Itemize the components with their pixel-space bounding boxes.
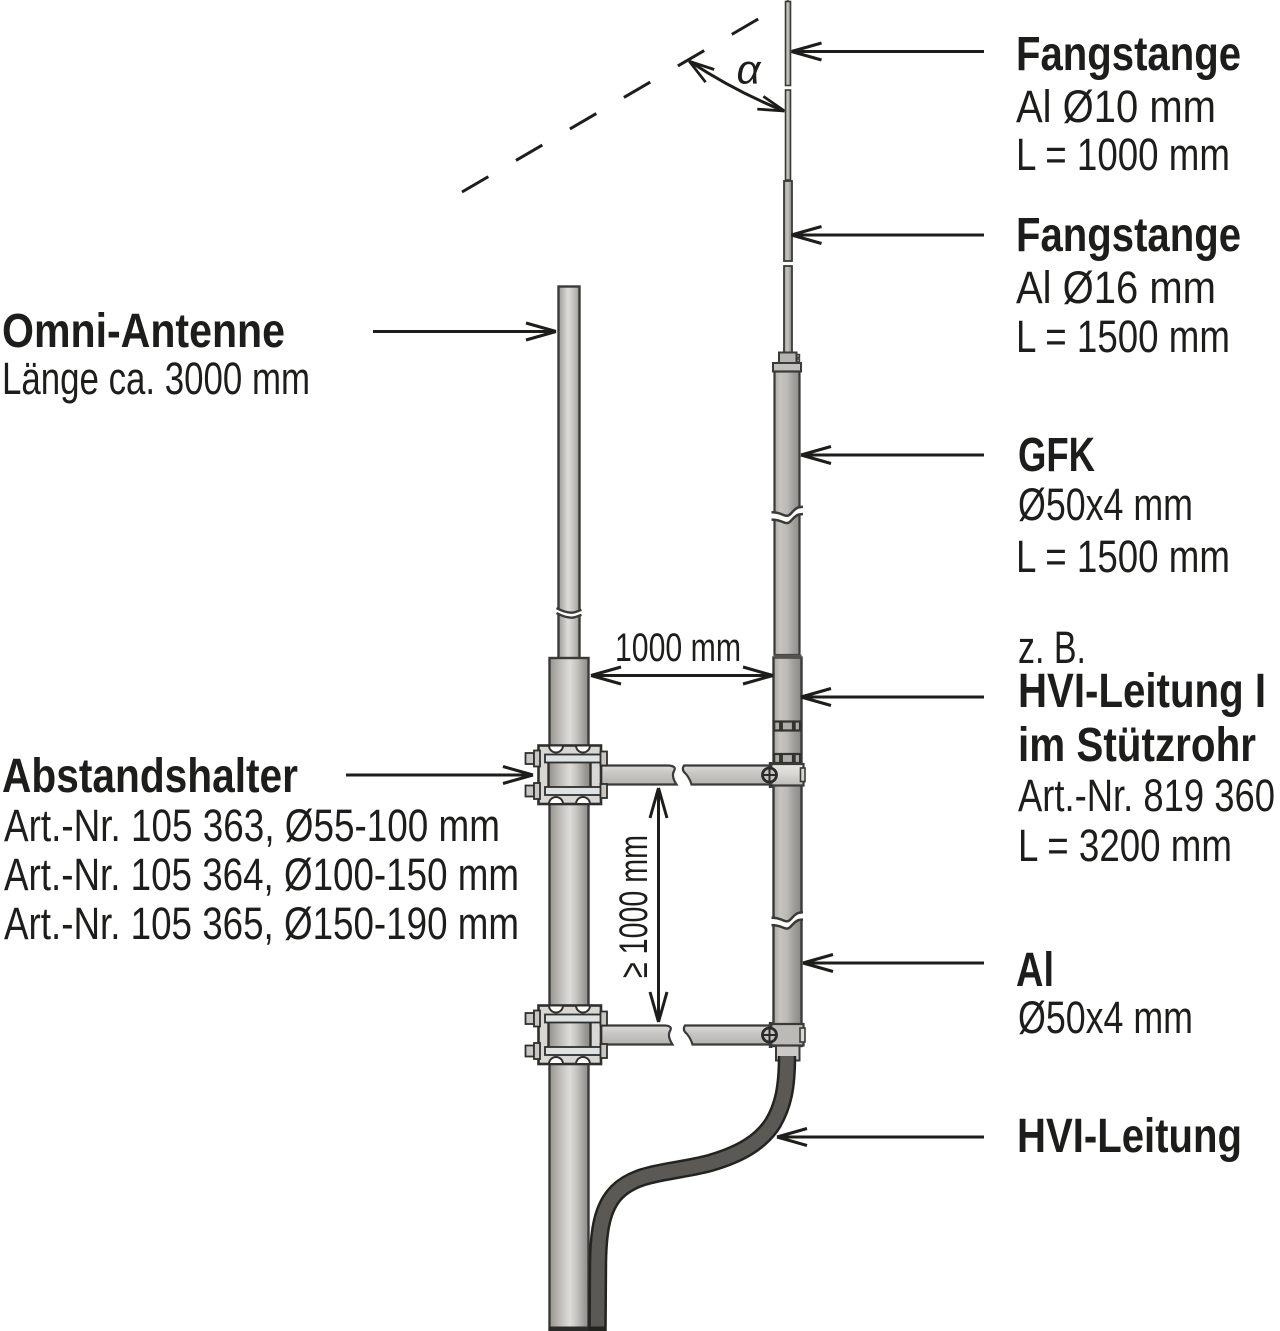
svg-text:L = 1500 mm: L = 1500 mm	[1016, 531, 1230, 582]
svg-text:L = 1000 mm: L = 1000 mm	[1016, 129, 1230, 180]
svg-text:Al: Al	[1016, 944, 1054, 997]
svg-text:Länge ca. 3000 mm: Länge ca. 3000 mm	[2, 353, 310, 404]
svg-text:L = 3200 mm: L = 3200 mm	[1018, 820, 1232, 871]
svg-text:HVI-Leitung I: HVI-Leitung I	[1018, 665, 1266, 718]
svg-text:Al Ø10 mm: Al Ø10 mm	[1016, 81, 1216, 132]
svg-text:im Stützrohr: im Stützrohr	[1018, 719, 1256, 772]
svg-text:GFK: GFK	[1018, 429, 1095, 482]
svg-text:Abstandshalter: Abstandshalter	[2, 750, 298, 803]
svg-text:HVI-Leitung: HVI-Leitung	[1017, 1110, 1242, 1163]
svg-text:L = 1500 mm: L = 1500 mm	[1016, 311, 1230, 362]
svg-text:Omni-Antenne: Omni-Antenne	[2, 305, 285, 358]
svg-text:Art.-Nr. 105 364, Ø100-150 mm: Art.-Nr. 105 364, Ø100-150 mm	[4, 849, 519, 900]
svg-text:≥ 1000 mm: ≥ 1000 mm	[612, 835, 656, 978]
svg-text:Fangstange: Fangstange	[1016, 28, 1241, 81]
svg-text:Ø50x4 mm: Ø50x4 mm	[1018, 479, 1193, 530]
svg-text:α: α	[737, 47, 763, 93]
svg-text:Art.-Nr. 819 360: Art.-Nr. 819 360	[1018, 770, 1275, 821]
svg-text:1000 mm: 1000 mm	[615, 626, 741, 670]
svg-text:Art.-Nr. 105 365, Ø150-190 mm: Art.-Nr. 105 365, Ø150-190 mm	[4, 898, 519, 949]
svg-text:Fangstange: Fangstange	[1016, 209, 1241, 262]
svg-text:Ø50x4 mm: Ø50x4 mm	[1018, 992, 1193, 1043]
svg-text:Al Ø16 mm: Al Ø16 mm	[1016, 262, 1216, 313]
svg-text:Art.-Nr. 105 363, Ø55-100 mm: Art.-Nr. 105 363, Ø55-100 mm	[4, 800, 500, 851]
